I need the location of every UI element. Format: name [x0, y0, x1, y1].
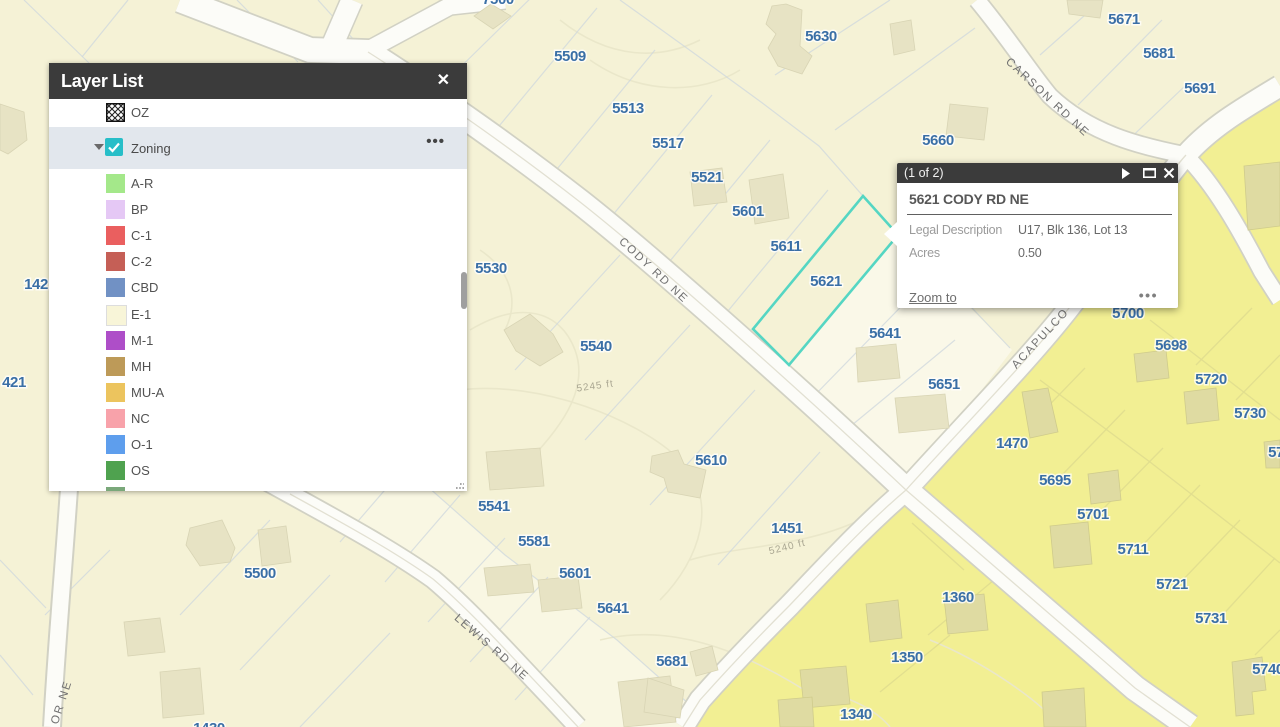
svg-text:5641: 5641	[869, 325, 901, 342]
svg-text:5521: 5521	[691, 169, 723, 186]
svg-text:5671: 5671	[1108, 11, 1140, 28]
svg-text:142: 142	[24, 276, 48, 293]
svg-text:5509: 5509	[554, 48, 586, 65]
svg-text:5530: 5530	[475, 260, 507, 277]
svg-text:5711: 5711	[1118, 541, 1149, 558]
svg-text:5621: 5621	[810, 273, 842, 290]
svg-text:5517: 5517	[652, 135, 684, 152]
svg-text:7500: 7500	[482, 0, 514, 8]
svg-text:575: 575	[1268, 444, 1280, 461]
svg-text:5540: 5540	[580, 338, 612, 355]
svg-text:5730: 5730	[1234, 405, 1266, 422]
svg-text:5740: 5740	[1252, 661, 1280, 678]
svg-text:5641: 5641	[597, 600, 629, 617]
svg-text:5541: 5541	[478, 498, 510, 515]
svg-text:5731: 5731	[1195, 610, 1227, 627]
svg-text:1350: 1350	[891, 649, 923, 666]
svg-text:5720: 5720	[1195, 371, 1227, 388]
svg-text:5630: 5630	[805, 28, 837, 45]
svg-text:5513: 5513	[612, 100, 644, 117]
svg-text:5681: 5681	[656, 653, 688, 670]
svg-text:5691: 5691	[1184, 80, 1216, 97]
svg-text:5681: 5681	[1143, 45, 1175, 62]
svg-text:5701: 5701	[1077, 506, 1109, 523]
svg-text:5651: 5651	[928, 376, 960, 393]
svg-text:1451: 1451	[771, 520, 803, 537]
svg-text:5610: 5610	[695, 452, 727, 469]
svg-text:5721: 5721	[1156, 576, 1188, 593]
svg-text:1360: 1360	[942, 589, 974, 606]
svg-text:1340: 1340	[840, 706, 872, 723]
svg-text:5611: 5611	[771, 238, 802, 255]
svg-text:5581: 5581	[518, 533, 550, 550]
svg-text:5660: 5660	[922, 132, 954, 149]
svg-text:5500: 5500	[244, 565, 276, 582]
svg-text:5601: 5601	[732, 203, 764, 220]
svg-text:5601: 5601	[559, 565, 591, 582]
svg-text:1470: 1470	[996, 435, 1028, 452]
svg-text:1430: 1430	[193, 720, 225, 727]
svg-text:421: 421	[2, 374, 26, 391]
svg-text:5695: 5695	[1039, 472, 1071, 489]
svg-text:5698: 5698	[1155, 337, 1187, 354]
